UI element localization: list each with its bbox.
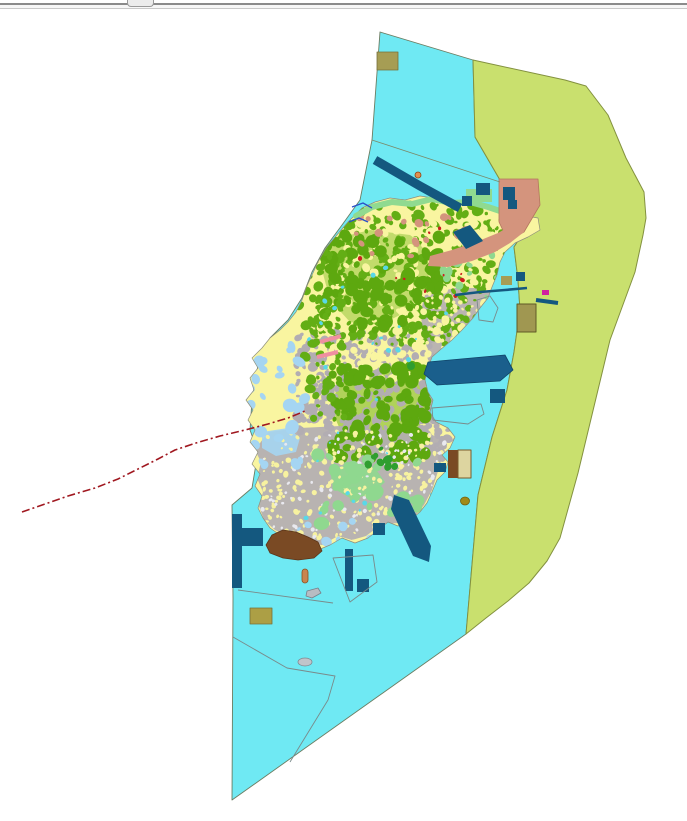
south-square xyxy=(357,579,369,592)
salmon-navy-blob xyxy=(508,200,517,209)
parcel-tan-half xyxy=(458,450,471,478)
port-rect xyxy=(490,389,505,403)
parcel-brown-half xyxy=(448,450,458,478)
west-tbar-horizontal xyxy=(242,528,263,546)
pier-rect-1 xyxy=(476,183,490,195)
ne-coast-navy-rect xyxy=(462,196,472,206)
east-khaki-rect-big xyxy=(517,304,536,332)
small-orange-blob xyxy=(302,569,308,583)
coast-green-dot xyxy=(407,362,415,370)
coast-navy-sliver xyxy=(434,463,446,472)
south-small-rect xyxy=(373,523,385,535)
orange-marker xyxy=(415,172,421,178)
south-bar xyxy=(345,549,353,591)
gray-boat-blob xyxy=(298,658,312,666)
window-divider xyxy=(0,3,687,9)
coast-mark-magenta xyxy=(542,290,549,295)
west-tbar-vertical xyxy=(232,514,242,588)
nw-khaki-rect xyxy=(377,52,398,70)
east-khaki-rect-small xyxy=(501,276,512,285)
olive-dot xyxy=(461,497,470,505)
divider-handle[interactable] xyxy=(127,0,154,7)
pier-rect-2 xyxy=(503,187,515,200)
landuse-map[interactable] xyxy=(0,0,687,821)
map-viewport[interactable] xyxy=(0,0,687,821)
east-navy-rect xyxy=(516,272,525,281)
south-khaki-rect xyxy=(250,608,272,624)
